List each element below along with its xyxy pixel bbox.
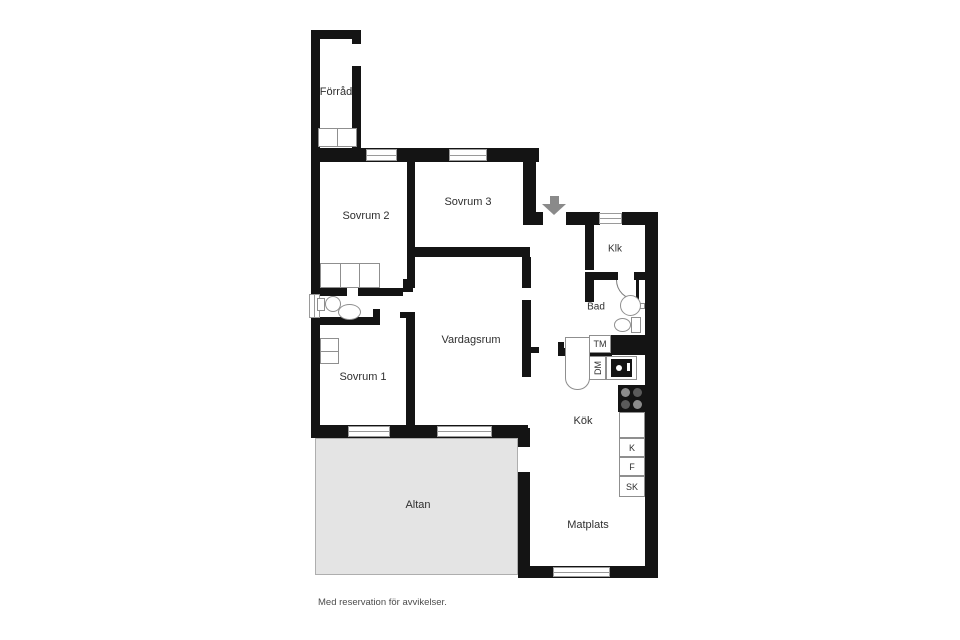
window [348, 426, 390, 437]
stove-burner [621, 388, 630, 397]
wall [407, 162, 415, 288]
wall [403, 279, 413, 292]
room-label-bedroom1: Sovrum 1 [339, 371, 386, 383]
freezer-label: F [629, 462, 635, 472]
wall [373, 309, 380, 317]
window [366, 149, 397, 161]
wall [400, 312, 415, 318]
wardrobe [318, 128, 357, 147]
wall [645, 212, 658, 578]
room-label-kitchen: Kök [574, 415, 593, 427]
stove-burner [633, 400, 642, 409]
washing-machine-box: TM [589, 335, 611, 353]
wardrobe [320, 338, 339, 364]
window [599, 213, 622, 224]
toilet-icon [317, 298, 325, 311]
dishwasher-box: DM [589, 356, 606, 380]
wall [311, 148, 539, 162]
washing-machine-label: TM [594, 339, 607, 349]
cabinet-label: SK [626, 482, 638, 492]
wall [352, 30, 361, 44]
wall [585, 217, 594, 270]
cabinet-box [619, 412, 645, 438]
room-label-bathroom: Bad [587, 302, 605, 313]
wall [611, 335, 645, 355]
room-label-dining: Matplats [567, 519, 609, 531]
room-label-terrace: Altan [405, 499, 430, 511]
wall [358, 288, 403, 296]
faucet-icon [627, 363, 630, 371]
wall [558, 342, 564, 348]
wall [566, 212, 600, 225]
fridge-label: K [629, 443, 635, 453]
wall [518, 472, 530, 568]
wall [531, 347, 539, 353]
window [553, 567, 610, 577]
wall [406, 312, 415, 425]
wall [522, 257, 531, 288]
room-label-bedroom2: Sovrum 2 [342, 210, 389, 222]
cabinet-box: SK [619, 476, 645, 497]
wall [413, 247, 530, 257]
toilet-icon [631, 317, 641, 333]
wall [311, 425, 528, 438]
window [449, 149, 487, 161]
kitchen-counter [565, 337, 590, 390]
stove-burner [633, 388, 642, 397]
stove-burner [621, 400, 630, 409]
room-label-livingroom: Vardagsrum [441, 334, 500, 346]
entrance-arrow-icon [542, 204, 566, 215]
room-label-bedroom3: Sovrum 3 [444, 196, 491, 208]
sink-icon [338, 304, 361, 320]
room-label-storage: Förråd [320, 86, 352, 98]
window [437, 426, 492, 437]
disclaimer-text: Med reservation för avvikelser. [318, 597, 447, 608]
room-label-closet: Klk [608, 244, 622, 255]
dishwasher-label: DM [593, 361, 603, 375]
wardrobe [320, 263, 380, 288]
wall [522, 300, 531, 377]
freezer-box: F [619, 457, 645, 476]
wall [518, 428, 530, 447]
fridge-box: K [619, 438, 645, 457]
kitchen-sink-drain [616, 365, 622, 371]
wall [585, 272, 594, 302]
toilet-icon [614, 318, 631, 332]
floor-plan: TM DM K F SK Förråd Sovrum 2 Sovrum 3 Kl… [0, 0, 960, 640]
sink-icon [620, 295, 641, 316]
